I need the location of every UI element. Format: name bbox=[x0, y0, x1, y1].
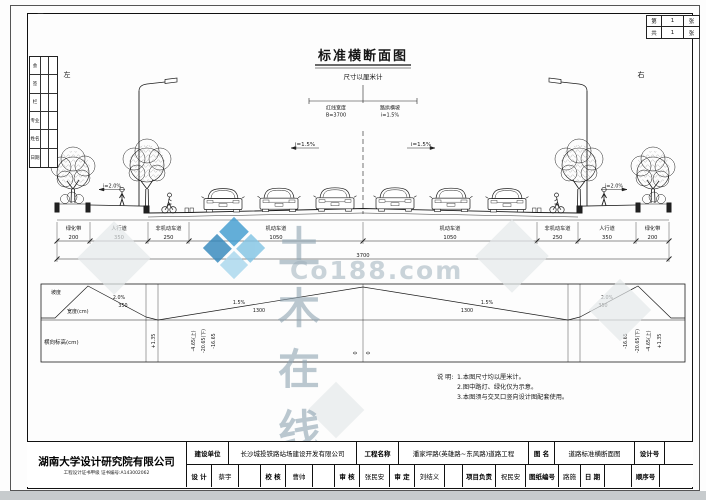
drawing-name-value: 道路标准横断面图 bbox=[555, 442, 635, 464]
countersign-strip: 会 签 栏 专业 姓名 日期 bbox=[29, 56, 58, 168]
right-end-label: 右 bbox=[638, 70, 645, 79]
profile-seg3-width: 350 bbox=[598, 303, 607, 309]
svg-text:-20.65(下): -20.65(下) bbox=[635, 329, 641, 353]
designer-label: 设 计 bbox=[187, 465, 212, 488]
date-label: 日 期 bbox=[581, 465, 605, 488]
svg-text:350: 350 bbox=[602, 235, 612, 241]
blank-cell bbox=[445, 465, 463, 488]
seq-value bbox=[660, 465, 693, 488]
svg-text:0: 0 bbox=[366, 351, 372, 354]
svg-text:+1.35: +1.35 bbox=[151, 334, 157, 349]
profile-grade-label: 坡度 bbox=[51, 289, 61, 296]
design-institute-cell: 湖南大学设计研究院有限公司 工程设计证书甲级 证书编号:A143002062 bbox=[27, 442, 187, 487]
svg-text:机动车道: 机动车道 bbox=[440, 224, 461, 232]
approver-value: 刘结义 bbox=[415, 465, 445, 488]
profile-seg1-slope: 1.5% bbox=[233, 300, 246, 306]
scan-edge-shadow bbox=[0, 491, 706, 500]
svg-text:非机动车道: 非机动车道 bbox=[156, 224, 182, 232]
profile-seg0-slope: 2.0% bbox=[113, 295, 126, 301]
pm-value: 祝民安 bbox=[496, 465, 526, 488]
svg-text:350: 350 bbox=[114, 235, 124, 241]
profile-width-label: 宽度(cm) bbox=[67, 308, 89, 315]
title-underline bbox=[315, 65, 411, 68]
profile-seg0-width: 350 bbox=[118, 303, 127, 309]
sidewalk-slope-left: i=2.0% bbox=[103, 184, 122, 190]
profile-seg1-width: 1300 bbox=[253, 308, 265, 314]
svg-text:机动车道: 机动车道 bbox=[266, 224, 287, 232]
design-certificate: 工程设计证书甲级 证书编号:A143002062 bbox=[64, 470, 150, 476]
profile-box bbox=[41, 284, 685, 362]
cross-section-drawing: 左 右 标准横断面图 尺寸以厘米计 红线宽度 B=3700 路拱横坡 i=1.5… bbox=[27, 13, 693, 441]
profile-seg2-width: 1300 bbox=[461, 308, 473, 314]
svg-text:+1.35: +1.35 bbox=[657, 334, 663, 349]
checker-value: 曹帅 bbox=[286, 465, 313, 488]
crown-slope-label: 路拱横坡 bbox=[380, 105, 400, 112]
centerline-annotation bbox=[309, 85, 417, 104]
approver-label: 审 定 bbox=[390, 465, 415, 488]
profile-seg3-slope: 2.0% bbox=[601, 295, 614, 301]
svg-text:人行道: 人行道 bbox=[111, 224, 127, 232]
svg-text:绿化带: 绿化带 bbox=[66, 224, 82, 232]
roadside-right bbox=[533, 78, 676, 213]
crown-slope-value: i=1.5% bbox=[381, 113, 400, 119]
reviewer-label: 审 核 bbox=[335, 465, 360, 488]
reviewer-value: 张民安 bbox=[360, 465, 390, 488]
cad-sheet: { "frame": { "left": "左", "right": "右", … bbox=[0, 0, 706, 500]
carriageway-slope-right: i=1.5% bbox=[411, 142, 431, 148]
seq-label: 顺序号 bbox=[632, 465, 660, 488]
roadside-left bbox=[51, 78, 194, 213]
drawing-subtitle: 尺寸以厘米计 bbox=[344, 72, 384, 81]
design-institute-name: 湖南大学设计研究院有限公司 bbox=[38, 454, 175, 469]
slope-underlines bbox=[99, 146, 627, 191]
svg-text:-16.65: -16.65 bbox=[623, 333, 629, 348]
owner-value: 长沙城投铁路站场建设开发有限公司 bbox=[229, 442, 357, 464]
designer-value: 蔡宇 bbox=[212, 465, 239, 488]
svg-text:200: 200 bbox=[69, 235, 79, 241]
note-line-2: 2.图中路灯、绿化仅为示意。 bbox=[457, 383, 537, 391]
pm-label: 项目负责 bbox=[463, 465, 496, 488]
left-end-label: 左 bbox=[64, 70, 71, 79]
blank-cell bbox=[239, 465, 261, 488]
drawing-name-label: 图 名 bbox=[529, 442, 555, 464]
owner-label: 建设单位 bbox=[187, 442, 229, 464]
title-block-grid: 建设单位 长沙城投铁路站场建设开发有限公司 工程名称 潘家坪路(英雄路~东风路)… bbox=[187, 442, 693, 487]
svg-text:-20.65(下): -20.65(下) bbox=[201, 329, 207, 353]
svg-text:250: 250 bbox=[553, 235, 563, 241]
note-line-1: 1.本图尺寸均以厘米计。 bbox=[457, 373, 525, 381]
sheet-count-table: 第1张 共1张 bbox=[646, 15, 700, 39]
design-no-value bbox=[665, 442, 693, 464]
profile-seg2-slope: 1.5% bbox=[481, 300, 494, 306]
note-line-3: 3.本图须与交叉口竖向设计图配套使用。 bbox=[457, 393, 568, 401]
svg-text:人行道: 人行道 bbox=[599, 224, 615, 232]
carriageway-slope-left: i=1.5% bbox=[295, 142, 315, 148]
sheet-no-value: 路施 bbox=[559, 465, 581, 488]
total-width-dim: 3700 bbox=[356, 253, 369, 259]
svg-text:-16.65: -16.65 bbox=[211, 333, 217, 348]
project-value: 潘家坪路(英雄路~东风路)道路工程 bbox=[399, 442, 529, 464]
profile-elev-label: 横向标高(cm) bbox=[44, 338, 79, 346]
svg-text:-4.65(上): -4.65(上) bbox=[645, 330, 652, 351]
blank-cell bbox=[313, 465, 335, 488]
sidewalk-slope-right: i=2.0% bbox=[605, 184, 624, 190]
svg-text:1050: 1050 bbox=[269, 235, 282, 241]
svg-text:绿化带: 绿化带 bbox=[645, 224, 661, 232]
svg-text:200: 200 bbox=[648, 235, 658, 241]
design-no-label: 设计号 bbox=[635, 442, 665, 464]
date-value bbox=[605, 465, 632, 488]
svg-text:0: 0 bbox=[353, 351, 359, 354]
redline-width-value: B=3700 bbox=[326, 113, 346, 119]
project-label: 工程名称 bbox=[357, 442, 399, 464]
svg-text:250: 250 bbox=[164, 235, 174, 241]
title-block: 湖南大学设计研究院有限公司 工程设计证书甲级 证书编号:A143002062 建… bbox=[27, 441, 693, 487]
svg-text:1050: 1050 bbox=[443, 235, 456, 241]
profile-elevations: +1.35 -4.65(上) -20.65(下) -16.65 0 0 -16.… bbox=[151, 329, 663, 355]
svg-text:-4.65(上): -4.65(上) bbox=[190, 330, 197, 351]
notes-heading: 说 明: bbox=[437, 373, 453, 381]
svg-text:非机动车道: 非机动车道 bbox=[545, 224, 571, 232]
redline-width-label: 红线宽度 bbox=[326, 105, 346, 112]
checker-label: 校 核 bbox=[261, 465, 286, 488]
sheet-no-label: 图纸编号 bbox=[526, 465, 559, 488]
drawing-title: 标准横断面图 bbox=[317, 48, 408, 64]
